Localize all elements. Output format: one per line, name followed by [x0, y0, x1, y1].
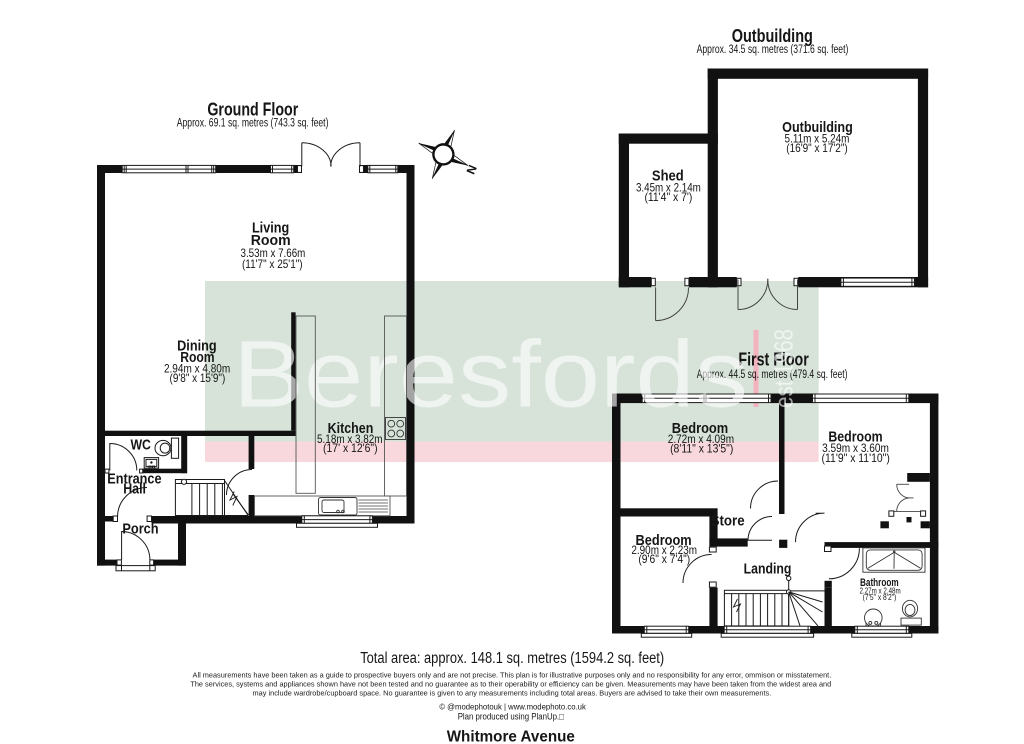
- svg-text:Whitmore Avenue: Whitmore Avenue: [447, 729, 575, 744]
- svg-text:Porch: Porch: [122, 521, 158, 537]
- svg-text:Outbuilding: Outbuilding: [732, 25, 813, 46]
- svg-text:(8'11" x 13'5"): (8'11" x 13'5"): [670, 442, 733, 456]
- svg-text:© @modephotouk | www.modephoto: © @modephotouk | www.modephoto.co.uk: [439, 702, 586, 711]
- svg-text:may include wardrobe/cupboard: may include wardrobe/cupboard space. No …: [253, 688, 772, 697]
- svg-text:Total area: approx. 148.1 sq.: Total area: approx. 148.1 sq. metres (15…: [360, 650, 664, 667]
- svg-text:(16'9" x 17'2"): (16'9" x 17'2"): [786, 141, 848, 155]
- svg-text:est 1968: est 1968: [769, 329, 799, 408]
- svg-text:(11'4" x 7'): (11'4" x 7'): [644, 190, 692, 204]
- svg-text:Hall: Hall: [123, 482, 146, 498]
- svg-text:The services, systems and appl: The services, systems and appliances sho…: [190, 679, 831, 688]
- svg-text:Beresfords: Beresfords: [233, 322, 748, 428]
- svg-text:(9'6" x 7'4"): (9'6" x 7'4"): [638, 552, 690, 566]
- svg-text:(17' x 12'6"): (17' x 12'6"): [323, 441, 378, 455]
- svg-text:(11'7" x 25'1"): (11'7" x 25'1"): [242, 257, 303, 271]
- svg-text:Landing: Landing: [744, 561, 792, 578]
- svg-text:Ground Floor: Ground Floor: [207, 99, 298, 120]
- svg-text:Plan produced using PlanUp.□: Plan produced using PlanUp.□: [458, 712, 565, 722]
- svg-text:All measurements have been tak: All measurements have been taken as a gu…: [193, 670, 832, 679]
- svg-text:Approx. 34.5 sq. metres (371.6: Approx. 34.5 sq. metres (371.6 sq. feet): [697, 44, 849, 56]
- svg-text:(9'8" x 15'9"): (9'8" x 15'9"): [170, 371, 226, 385]
- svg-text:Store: Store: [711, 512, 745, 529]
- svg-text:Approx. 69.1 sq. metres (743.3: Approx. 69.1 sq. metres (743.3 sq. feet): [177, 118, 329, 130]
- svg-text:(7'5" x 8'2"): (7'5" x 8'2"): [863, 593, 897, 602]
- svg-text:WC: WC: [130, 437, 151, 453]
- svg-text:(11'9" x 11'10"): (11'9" x 11'10"): [822, 451, 890, 465]
